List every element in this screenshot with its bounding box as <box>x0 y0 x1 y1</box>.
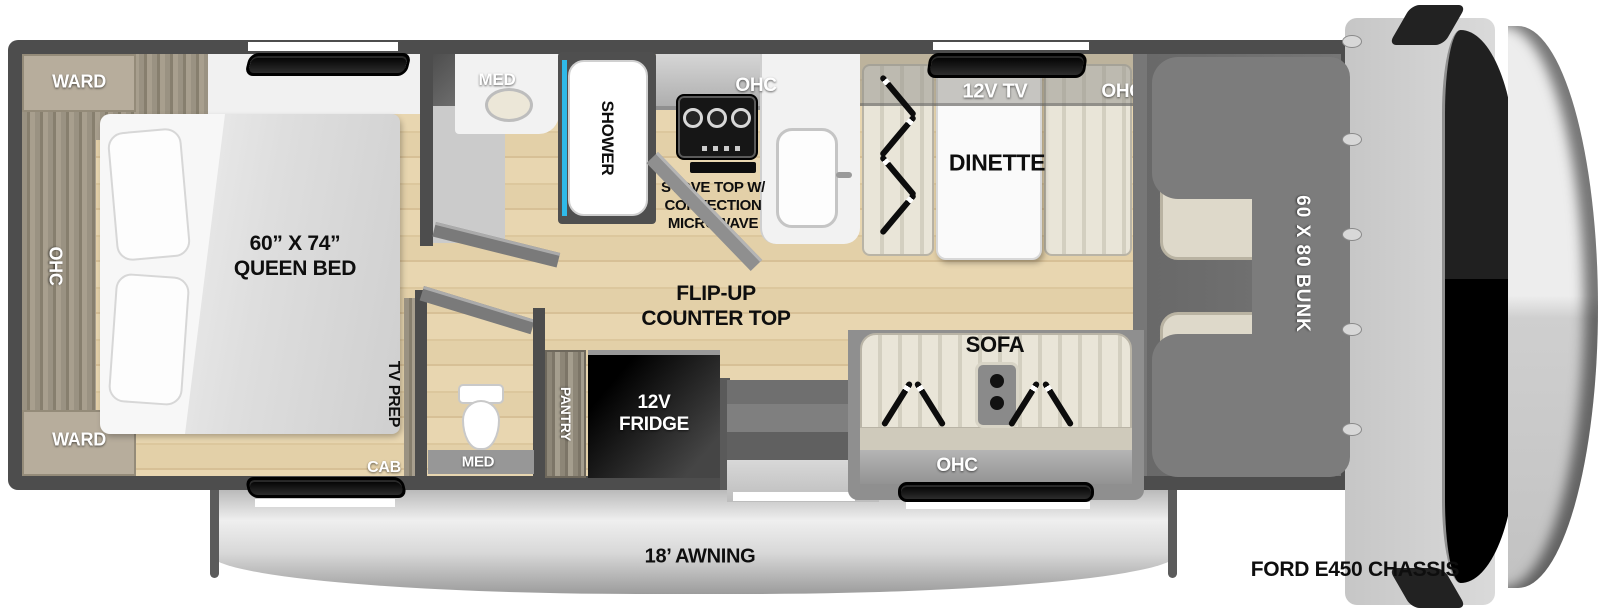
shower-door <box>562 60 567 216</box>
rear-bath-right-wall <box>533 308 545 476</box>
rear-bath-left-wall <box>415 290 427 476</box>
awning-end-left <box>210 486 219 578</box>
entry-step <box>727 380 853 404</box>
body-nub <box>1342 133 1362 146</box>
bedroom-window-bottom <box>245 477 407 498</box>
flip-up-counter-label: FLIP-UP COUNTER TOP <box>641 281 790 331</box>
shower-label: SHOWER <box>597 101 617 176</box>
body-nub <box>1342 228 1362 241</box>
bedroom-window-top <box>244 53 412 76</box>
stove-burner <box>683 108 703 128</box>
body-nub <box>1342 323 1362 336</box>
fridge-line1: 12V <box>619 392 689 414</box>
rear-bath-med-label: MED <box>462 454 494 471</box>
entry-door-opening <box>733 492 855 501</box>
pillow <box>107 127 192 262</box>
bedroom-window-gap-bottom <box>255 499 395 507</box>
body-nub <box>1342 35 1362 48</box>
stove-burner <box>731 108 751 128</box>
kitchen-sink <box>776 128 838 228</box>
tv-prep-label: TV PREP <box>384 361 402 427</box>
kitchen-faucet <box>836 172 852 178</box>
sofa-seat-front <box>860 428 1132 452</box>
dinette-label: DINETTE <box>949 150 1045 177</box>
stove-knobs <box>702 146 742 151</box>
sofa-window-gap <box>906 502 1090 509</box>
fridge-line2: FRIDGE <box>619 414 689 436</box>
bedroom-ohc-label: OHC <box>45 246 66 285</box>
bath-sink <box>485 88 533 122</box>
kitchen-ohc-label: OHC <box>735 75 776 97</box>
sofa-ohc <box>860 450 1132 484</box>
rv-floorplan: 60” X 74” QUEEN BED WARD WARD OHC TV PRE… <box>0 0 1600 615</box>
awning-label: 18’ AWNING <box>645 546 756 569</box>
chassis-label: FORD E450 CHASSIS <box>1251 558 1459 582</box>
flip-up-line2: COUNTER TOP <box>641 306 790 331</box>
wardrobe-top-label: WARD <box>52 72 106 93</box>
sofa-ohc-label: OHC <box>936 455 977 477</box>
hood <box>1508 26 1598 588</box>
cab-label: CAB <box>367 459 401 477</box>
entry-step <box>727 404 867 432</box>
bed-size-text: 60” X 74” <box>234 231 356 256</box>
awning-end-right <box>1168 486 1177 578</box>
cupholder <box>990 396 1004 410</box>
bunk-bottom <box>1152 334 1350 477</box>
bedroom-bath-wall <box>420 54 433 246</box>
sofa-window <box>898 482 1094 502</box>
windshield <box>1442 30 1516 583</box>
stove-burner <box>707 108 727 128</box>
bed-name-text: QUEEN BED <box>234 256 356 281</box>
body-nub <box>1342 423 1362 436</box>
bedroom-window-gap-top <box>248 42 398 51</box>
dinette-window <box>926 53 1088 78</box>
pantry-label: PANTRY <box>558 387 574 441</box>
fridge-label: 12V FRIDGE <box>619 392 689 436</box>
flip-up-line1: FLIP-UP <box>641 281 790 306</box>
sofa-label: SOFA <box>966 332 1025 358</box>
dinette-tv-label: 12V TV <box>963 81 1028 104</box>
microwave-vent <box>690 162 756 173</box>
dinette-window-gap <box>933 42 1089 50</box>
pillow <box>108 273 191 407</box>
cupholder <box>990 374 1004 388</box>
bath-med-label: MED <box>479 70 516 90</box>
bunk-label: 60 X 80 BUNK <box>1291 195 1313 333</box>
queen-bed-label: 60” X 74” QUEEN BED <box>234 231 356 281</box>
wardrobe-bottom-label: WARD <box>52 430 106 451</box>
